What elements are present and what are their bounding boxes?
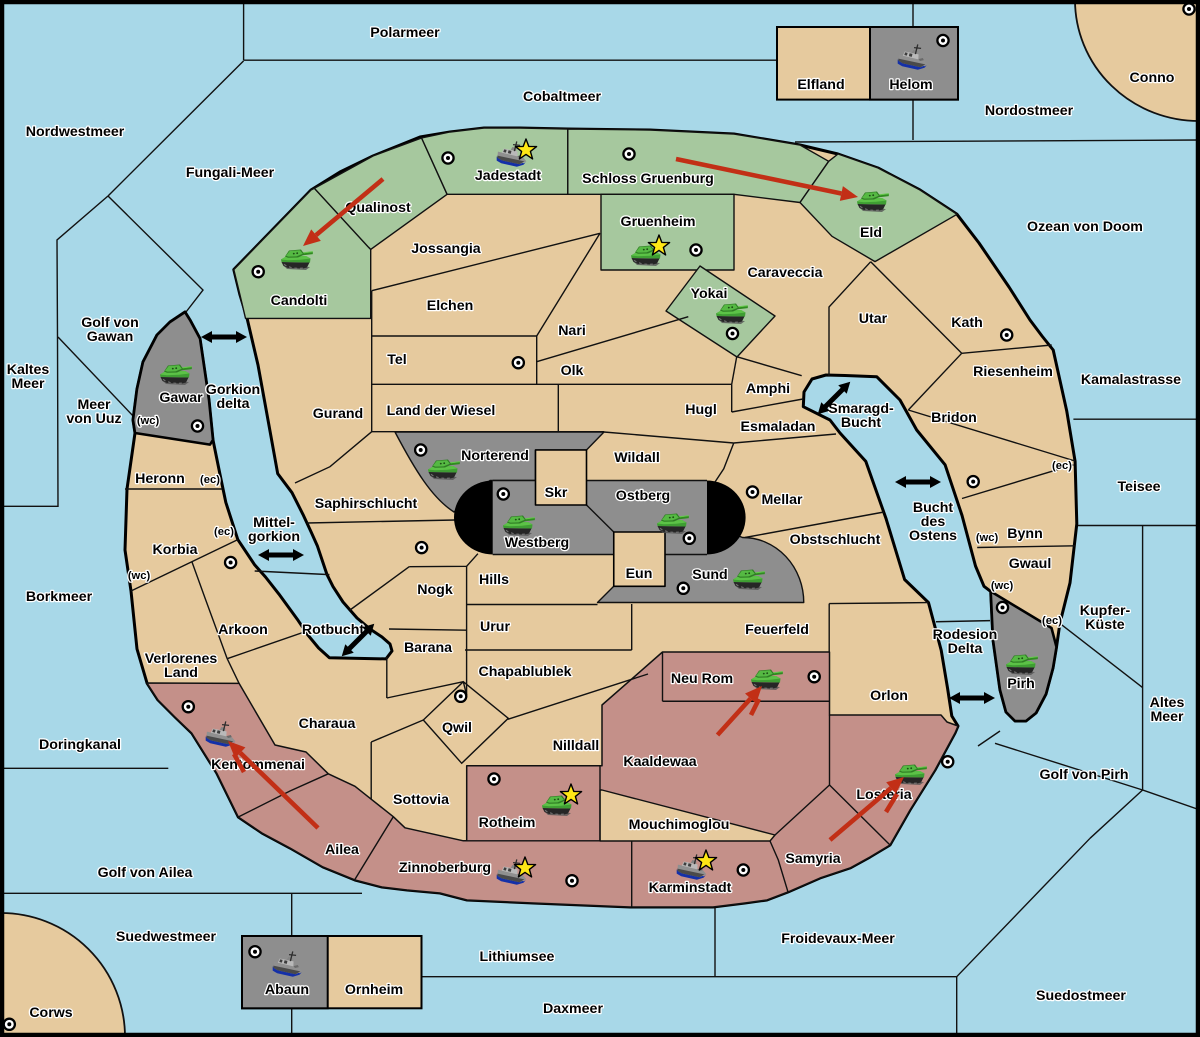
svg-text:delta: delta [216,396,249,412]
svg-text:Samyria: Samyria [785,851,840,867]
svg-text:Elfland: Elfland [797,77,844,93]
svg-text:Jossangia: Jossangia [411,241,481,257]
svg-text:Ozean von Doom: Ozean von Doom [1027,219,1143,235]
svg-text:Abaun: Abaun [265,982,309,998]
svg-text:Ornheim: Ornheim [345,982,403,998]
svg-text:Fungali-Meer: Fungali-Meer [186,165,275,181]
svg-text:gorkion: gorkion [248,529,300,545]
svg-text:Gwaul: Gwaul [1009,556,1052,572]
svg-text:Eun: Eun [626,566,653,582]
svg-text:(ec): (ec) [214,526,234,538]
svg-text:Nari: Nari [558,323,586,339]
svg-text:Gruenheim: Gruenheim [621,214,696,230]
svg-text:Land der Wiesel: Land der Wiesel [387,403,496,419]
svg-text:Olk: Olk [561,363,584,379]
svg-text:Suedostmeer: Suedostmeer [1036,988,1126,1004]
svg-text:Sund: Sund [692,567,727,583]
svg-text:Polarmeer: Polarmeer [370,25,440,41]
svg-text:Amphi: Amphi [746,381,790,397]
svg-text:Wildall: Wildall [614,450,660,466]
svg-text:Sottovia: Sottovia [393,792,449,808]
svg-text:Saphirschlucht: Saphirschlucht [315,496,418,512]
svg-text:Golf von Ailea: Golf von Ailea [98,865,193,881]
svg-text:Ailea: Ailea [325,842,359,858]
svg-text:Yokai: Yokai [691,286,728,302]
svg-text:Kaaldewaa: Kaaldewaa [623,754,696,770]
svg-text:Chapablublek: Chapablublek [478,664,571,680]
svg-text:Arkoon: Arkoon [218,622,268,638]
svg-text:Qwil: Qwil [442,720,472,736]
svg-text:Urur: Urur [480,619,510,635]
svg-text:Meer: Meer [1150,709,1184,725]
svg-text:Delta: Delta [948,641,983,657]
svg-text:Candolti: Candolti [271,293,328,309]
svg-text:Esmaladan: Esmaladan [741,419,816,435]
svg-text:(ec): (ec) [1042,615,1062,627]
svg-text:Hills: Hills [479,572,509,588]
svg-text:Land: Land [164,665,198,681]
svg-text:Pirh: Pirh [1007,676,1035,692]
svg-text:Norterend: Norterend [461,448,529,464]
svg-text:Mouchimoglou: Mouchimoglou [629,817,730,833]
svg-text:Rotbucht: Rotbucht [302,622,365,638]
svg-text:Karminstadt: Karminstadt [649,880,732,896]
svg-text:(ec): (ec) [1052,460,1072,472]
svg-text:Barana: Barana [404,640,452,656]
svg-text:Charaua: Charaua [299,716,356,732]
svg-text:Orlon: Orlon [870,688,908,704]
svg-text:von Uuz: von Uuz [66,411,121,427]
svg-text:Nogk: Nogk [417,582,453,598]
svg-text:Teisee: Teisee [1117,479,1160,495]
svg-text:Obstschlucht: Obstschlucht [790,532,881,548]
svg-text:Corws: Corws [29,1005,72,1021]
svg-text:Küste: Küste [1085,617,1125,633]
svg-text:Bridon: Bridon [931,410,977,426]
svg-text:Mellar: Mellar [761,492,802,508]
svg-text:Suedwestmeer: Suedwestmeer [116,929,217,945]
svg-text:Kath: Kath [951,315,983,331]
svg-text:(ec): (ec) [200,474,220,486]
svg-text:Helom: Helom [889,77,932,93]
svg-text:Neu Rom: Neu Rom [671,671,733,687]
svg-text:Froidevaux-Meer: Froidevaux-Meer [781,931,895,947]
svg-text:Conno: Conno [1130,70,1175,86]
svg-text:(wc): (wc) [128,570,151,582]
svg-text:Cobaltmeer: Cobaltmeer [523,89,602,105]
svg-text:Korbia: Korbia [153,542,198,558]
svg-text:Utar: Utar [859,311,888,327]
svg-text:Ostens: Ostens [909,528,957,544]
svg-text:Bucht: Bucht [841,415,881,431]
svg-text:Doringkanal: Doringkanal [39,737,121,753]
svg-text:Riesenheim: Riesenheim [973,364,1053,380]
svg-text:Meer: Meer [11,376,45,392]
svg-text:(wc): (wc) [991,580,1014,592]
svg-text:Borkmeer: Borkmeer [26,589,93,605]
svg-text:Rotheim: Rotheim [479,815,536,831]
svg-text:Elchen: Elchen [427,298,474,314]
svg-text:Lithiumsee: Lithiumsee [480,949,555,965]
svg-text:Nordwestmeer: Nordwestmeer [26,124,125,140]
svg-text:Feuerfeld: Feuerfeld [745,622,809,638]
svg-text:Jadestadt: Jadestadt [475,168,542,184]
svg-text:Caraveccia: Caraveccia [748,265,823,281]
svg-text:Daxmeer: Daxmeer [543,1001,603,1017]
svg-text:Gawar: Gawar [159,390,203,406]
svg-text:Westberg: Westberg [505,535,569,551]
svg-text:Golf von Pirh: Golf von Pirh [1039,767,1128,783]
svg-text:Gurand: Gurand [313,406,363,422]
svg-text:Schloss Gruenburg: Schloss Gruenburg [582,171,714,187]
svg-text:Kamalastrasse: Kamalastrasse [1081,372,1181,388]
svg-text:Bynn: Bynn [1007,526,1042,542]
svg-text:Ostberg: Ostberg [616,488,670,504]
svg-text:Gawan: Gawan [87,329,134,345]
svg-text:Nilldall: Nilldall [553,738,600,754]
svg-text:Eld: Eld [860,225,882,241]
svg-text:Tel: Tel [387,352,406,368]
svg-text:(wc): (wc) [137,415,160,427]
svg-text:Zinnoberburg: Zinnoberburg [399,860,491,876]
svg-text:Skr: Skr [545,485,568,501]
svg-text:Hugl: Hugl [685,402,717,418]
svg-text:Heronn: Heronn [135,471,185,487]
svg-text:(wc): (wc) [976,532,999,544]
svg-text:Nordostmeer: Nordostmeer [985,103,1074,119]
